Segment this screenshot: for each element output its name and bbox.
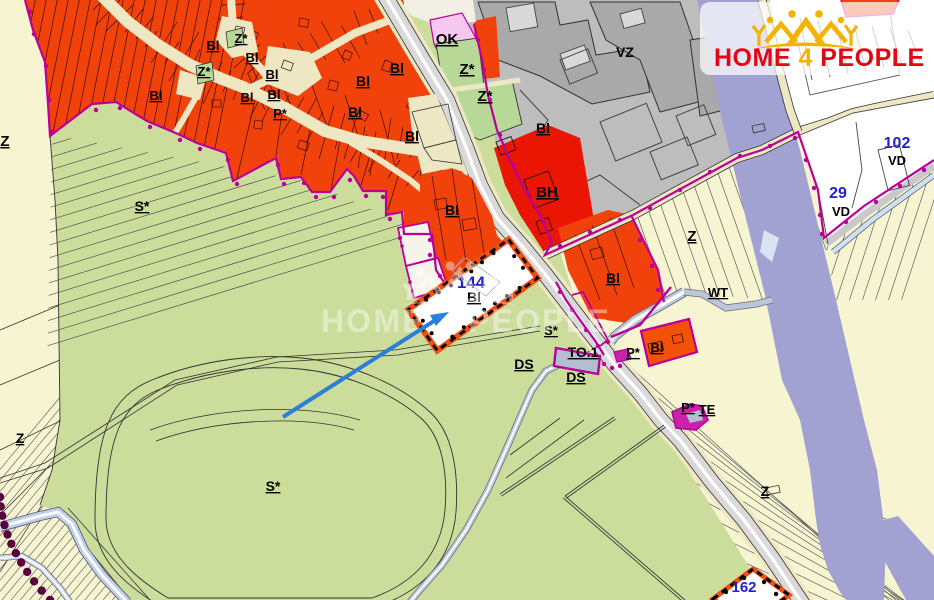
svg-text:Z: Z bbox=[16, 430, 25, 446]
svg-text:Bl: Bl bbox=[246, 50, 259, 65]
svg-text:Bl: Bl bbox=[651, 340, 664, 355]
svg-text:29: 29 bbox=[829, 185, 847, 202]
svg-text:VD: VD bbox=[888, 153, 906, 168]
svg-text:TO.1: TO.1 bbox=[568, 344, 599, 360]
svg-text:Bl: Bl bbox=[606, 270, 620, 286]
svg-text:DS: DS bbox=[514, 356, 533, 372]
svg-text:P*: P* bbox=[273, 106, 288, 121]
svg-text:Z*: Z* bbox=[198, 64, 212, 79]
svg-text:S*: S* bbox=[266, 478, 281, 494]
svg-text:Bl: Bl bbox=[241, 90, 254, 105]
svg-text:Bl: Bl bbox=[266, 67, 279, 82]
svg-text:VD: VD bbox=[832, 204, 850, 219]
svg-text:P*: P* bbox=[626, 345, 641, 360]
svg-text:Z: Z bbox=[0, 133, 9, 150]
svg-text:Z*: Z* bbox=[478, 88, 493, 105]
svg-text:162: 162 bbox=[731, 579, 756, 596]
svg-text:VZ: VZ bbox=[616, 44, 634, 60]
svg-text:OK: OK bbox=[436, 31, 459, 48]
svg-text:HOME 4 PEOPLE: HOME 4 PEOPLE bbox=[714, 44, 925, 72]
svg-text:HOME 4 PEOPLE: HOME 4 PEOPLE bbox=[321, 303, 611, 339]
svg-text:102: 102 bbox=[884, 135, 911, 152]
svg-text:Bl: Bl bbox=[348, 104, 362, 120]
svg-text:P*: P* bbox=[681, 400, 696, 415]
svg-text:Bl: Bl bbox=[390, 60, 404, 76]
svg-text:Bl: Bl bbox=[445, 202, 459, 218]
svg-text:Bl: Bl bbox=[268, 87, 281, 102]
svg-text:Z*: Z* bbox=[460, 61, 475, 78]
svg-text:Z*: Z* bbox=[235, 31, 249, 46]
svg-text:Bl: Bl bbox=[150, 88, 163, 103]
svg-text:BH: BH bbox=[536, 184, 558, 201]
svg-text:S*: S* bbox=[135, 198, 150, 214]
svg-text:Bl: Bl bbox=[536, 120, 550, 136]
svg-text:Bl: Bl bbox=[207, 38, 220, 53]
svg-text:Z: Z bbox=[687, 228, 696, 245]
svg-text:Bl: Bl bbox=[356, 73, 370, 89]
svg-text:Bl: Bl bbox=[405, 128, 419, 144]
svg-text:TE: TE bbox=[699, 402, 716, 417]
svg-text:Z: Z bbox=[761, 483, 770, 499]
svg-text:DS: DS bbox=[566, 369, 585, 385]
svg-text:WT: WT bbox=[708, 285, 728, 300]
